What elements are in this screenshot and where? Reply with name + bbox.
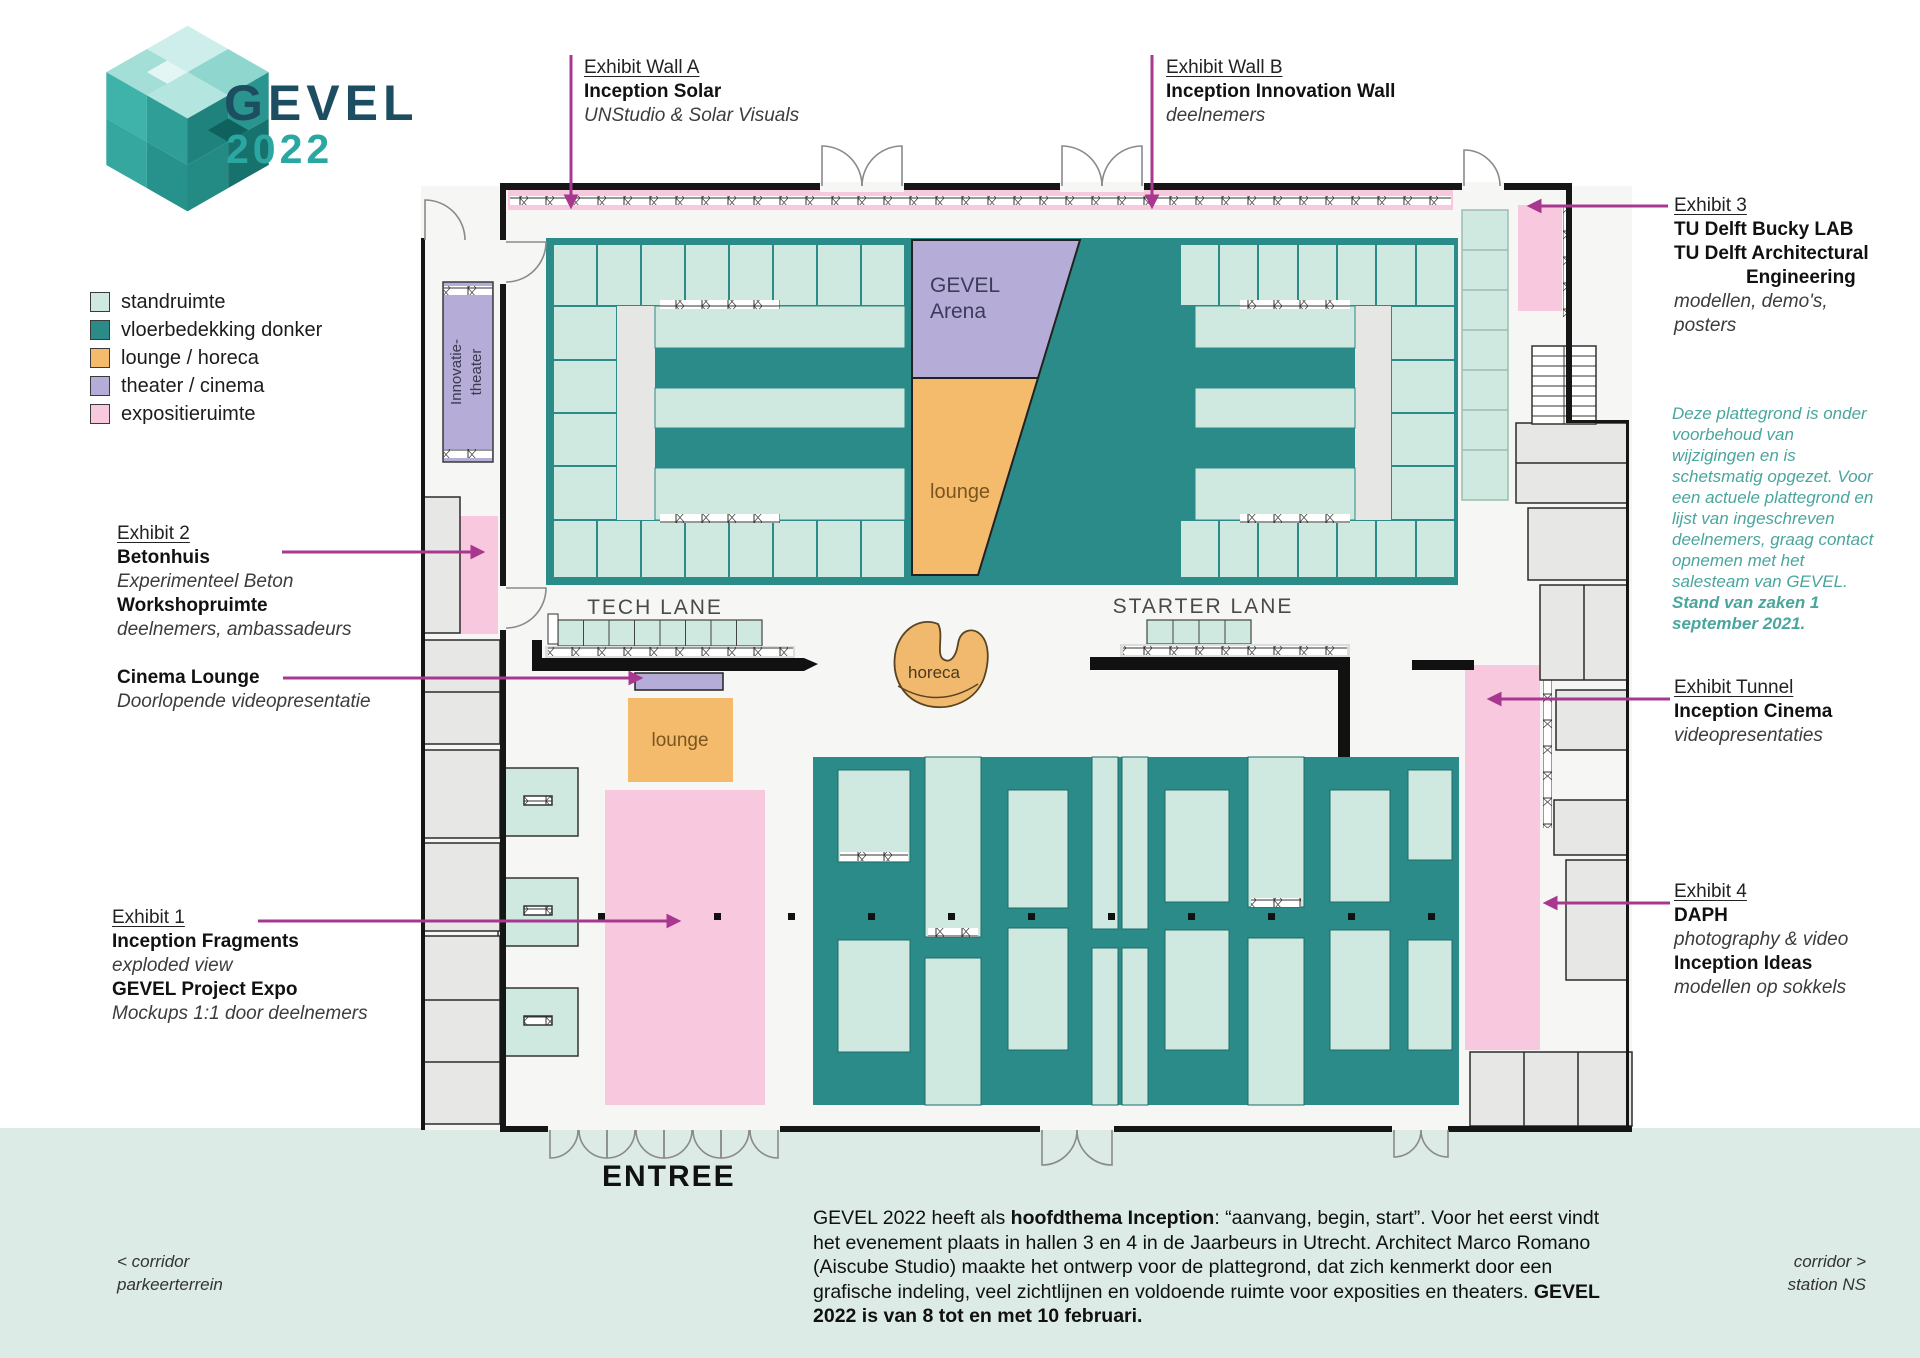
callout-title: Exhibit Wall B bbox=[1166, 56, 1395, 80]
callout-detail: deelnemers bbox=[1166, 104, 1395, 128]
stands-lower-left bbox=[498, 768, 578, 1056]
callout-detail: Doorlopende videopresentatie bbox=[117, 690, 371, 714]
lounge-area: lounge bbox=[628, 698, 733, 782]
callout-title: Exhibit 2 bbox=[117, 522, 351, 546]
corridor-parkeerterrein-label: < corridor parkeerterrein bbox=[117, 1250, 223, 1296]
callout-name: Cinema Lounge bbox=[117, 666, 371, 690]
logo-year: 2022 bbox=[226, 126, 333, 173]
callout-title: Exhibit 4 bbox=[1674, 880, 1884, 904]
callout-name: GEVEL Project Expo bbox=[112, 978, 368, 1002]
tech-lane-label: TECH LANE bbox=[587, 596, 723, 619]
innovatie-label-line1: Innovatie- bbox=[448, 339, 465, 405]
entree-label: ENTREE bbox=[602, 1160, 736, 1193]
stand-cluster-right bbox=[1180, 244, 1455, 578]
logo-title: GEVEL bbox=[224, 74, 418, 132]
callout-name: TU Delft Bucky LAB bbox=[1674, 218, 1884, 242]
callout-name: Inception Ideas bbox=[1674, 952, 1884, 976]
callout-name: Inception Fragments bbox=[112, 930, 368, 954]
callout-exhibit-tunnel: Exhibit Tunnel Inception Cinema videopre… bbox=[1674, 676, 1884, 748]
callout-detail: videopresentaties bbox=[1674, 724, 1884, 748]
corridor-station-ns-label: corridor > station NS bbox=[1700, 1250, 1866, 1296]
innovatie-label-line2: theater bbox=[468, 349, 485, 396]
callout-title: Exhibit Wall A bbox=[584, 56, 799, 80]
starter-lane-label: STARTER LANE bbox=[1113, 595, 1294, 618]
callout-exhibit-2: Exhibit 2 Betonhuis Experimenteel Beton … bbox=[117, 522, 351, 642]
callout-detail: exploded view bbox=[112, 954, 368, 978]
corridor-line: station NS bbox=[1700, 1273, 1866, 1296]
callout-detail: UNStudio & Solar Visuals bbox=[584, 104, 799, 128]
callout-detail: deelnemers, ambassadeurs bbox=[117, 618, 351, 642]
exhibit2-area bbox=[460, 516, 498, 634]
exhibit1-area bbox=[605, 790, 765, 1105]
callout-name: TU Delft Architectural bbox=[1674, 242, 1884, 266]
stand-cluster-left bbox=[553, 244, 905, 578]
callout-exhibit-wall-a: Exhibit Wall A Inception Solar UNStudio … bbox=[584, 56, 799, 128]
callout-exhibit-wall-b: Exhibit Wall B Inception Innovation Wall… bbox=[1166, 56, 1395, 128]
horeca-label: horeca bbox=[908, 663, 961, 682]
callout-detail: Mockups 1:1 door deelnemers bbox=[112, 1002, 368, 1026]
callout-title: Exhibit Tunnel bbox=[1674, 676, 1884, 700]
callout-name: Inception Innovation Wall bbox=[1166, 80, 1395, 104]
callout-name: Inception Cinema bbox=[1674, 700, 1884, 724]
callout-name: Workshopruimte bbox=[117, 594, 351, 618]
horeca-area: horeca bbox=[895, 622, 988, 707]
callout-detail: modellen op sokkels bbox=[1674, 976, 1884, 1000]
callout-exhibit-3: Exhibit 3 TU Delft Bucky LAB TU Delft Ar… bbox=[1674, 194, 1884, 338]
callout-detail: photography & video bbox=[1674, 928, 1884, 952]
lounge-square-label: lounge bbox=[651, 730, 708, 751]
callout-title: Exhibit 3 bbox=[1674, 194, 1884, 218]
callout-title: Exhibit 1 bbox=[112, 906, 368, 930]
callout-name: DAPH bbox=[1674, 904, 1884, 928]
exhibit3-area bbox=[1518, 205, 1562, 311]
expo-tunnel-area bbox=[1465, 665, 1540, 1050]
arena-label-line1: GEVEL bbox=[930, 274, 1000, 297]
arena-lounge-label: lounge bbox=[930, 481, 990, 503]
arena-label-line2: Arena bbox=[930, 300, 986, 323]
callout-name: Betonhuis bbox=[117, 546, 351, 570]
callout-detail: Experimenteel Beton bbox=[117, 570, 351, 594]
disclaimer-note: Deze plattegrond is onder voorbehoud van… bbox=[1672, 403, 1880, 634]
callout-exhibit-4: Exhibit 4 DAPH photography & video Incep… bbox=[1674, 880, 1884, 1000]
callout-detail: modellen, demo's, posters bbox=[1674, 290, 1884, 338]
stairs bbox=[1532, 346, 1596, 424]
stand-strip-right-wall bbox=[1462, 210, 1508, 500]
callout-name: Inception Solar bbox=[584, 80, 799, 104]
callout-exhibit-1: Exhibit 1 Inception Fragments exploded v… bbox=[112, 906, 368, 1026]
intro-paragraph: GEVEL 2022 heeft als hoofdthema Inceptio… bbox=[813, 1206, 1613, 1329]
corridor-line: parkeerterrein bbox=[117, 1273, 223, 1296]
cinema-lounge-area bbox=[635, 673, 723, 690]
innovatie-theater: Innovatie- theater bbox=[443, 282, 493, 462]
callout-cinema-lounge: Cinema Lounge Doorlopende videopresentat… bbox=[117, 666, 371, 714]
corridor-line: corridor > bbox=[1700, 1250, 1866, 1273]
page: GEVEL Arena lounge Innovatie- theater bbox=[0, 0, 1920, 1358]
callout-name: Engineering bbox=[1674, 266, 1884, 290]
corridor-line: < corridor bbox=[117, 1250, 223, 1273]
